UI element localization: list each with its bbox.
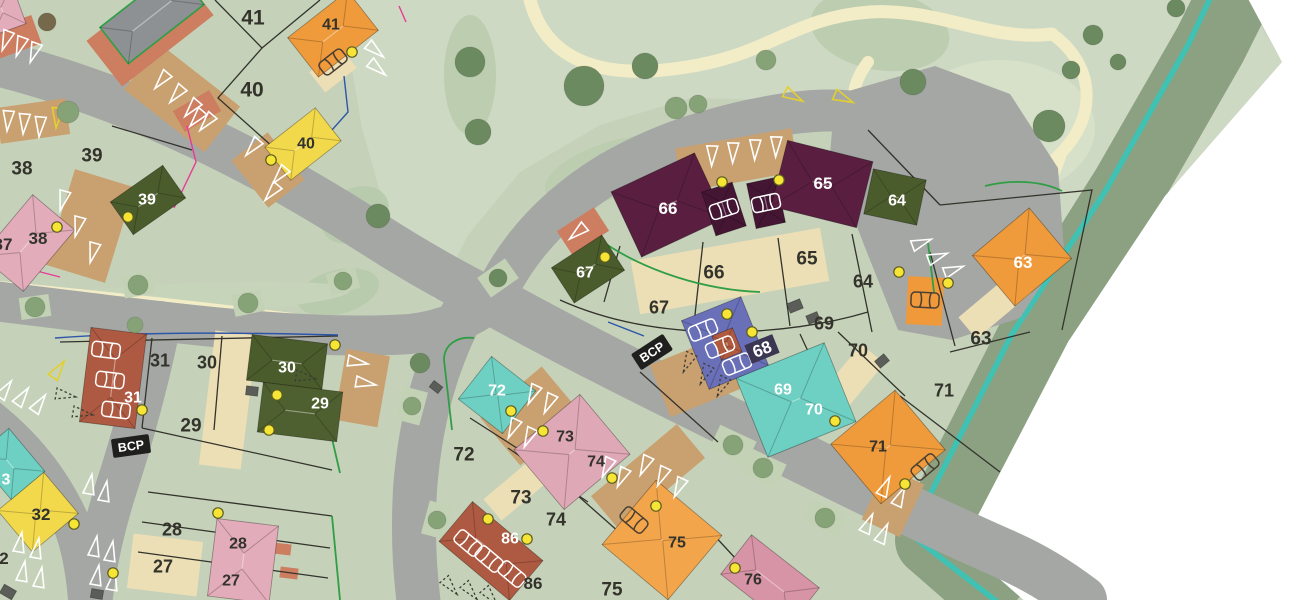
tree-icon bbox=[403, 397, 421, 415]
tree-icon bbox=[465, 119, 491, 145]
tree-icon bbox=[564, 66, 604, 106]
house-number-label: 70 bbox=[805, 402, 823, 419]
tree-icon bbox=[1033, 110, 1065, 142]
plot-number-label: 32 bbox=[32, 505, 51, 524]
building bbox=[207, 519, 278, 600]
site-plan-viewport: BCPBCP4140393838374140666564676369707171… bbox=[0, 0, 1299, 600]
tree-icon bbox=[25, 297, 45, 317]
plot-number-label: 70 bbox=[848, 340, 868, 360]
house-number-label: 72 bbox=[488, 383, 506, 400]
plot-number-label: 67 bbox=[649, 297, 669, 317]
plot-number-label: 29 bbox=[180, 416, 201, 437]
building bbox=[90, 589, 103, 600]
corner-marker bbox=[347, 47, 357, 57]
plot-number-label: 75 bbox=[601, 580, 623, 600]
corner-marker bbox=[538, 426, 548, 436]
tree-icon bbox=[334, 272, 352, 290]
plot-number-label: 74 bbox=[546, 509, 566, 529]
corner-marker bbox=[774, 175, 784, 185]
plot-number-label: 63 bbox=[970, 329, 991, 350]
building bbox=[245, 386, 258, 396]
corner-marker bbox=[651, 501, 661, 511]
plot-number-label: 41 bbox=[241, 6, 265, 29]
plot-number-label: 38 bbox=[11, 159, 32, 180]
plot-number-label: 38 bbox=[29, 229, 48, 248]
tree-icon bbox=[1062, 61, 1080, 79]
plot-number-label: 37 bbox=[0, 235, 12, 254]
plot-number-label: 73 bbox=[510, 488, 531, 509]
tree-icon bbox=[1167, 0, 1185, 17]
tree-icon bbox=[815, 508, 835, 528]
plot-number-label: 27 bbox=[222, 573, 240, 590]
plot-number-label: 27 bbox=[153, 556, 173, 576]
plot-number-label: 71 bbox=[934, 380, 954, 400]
corner-marker bbox=[747, 327, 757, 337]
tree-icon bbox=[410, 353, 430, 373]
plot-number-label: 75 bbox=[668, 535, 686, 552]
tree-icon bbox=[238, 293, 258, 313]
plot-number-label: 31 bbox=[150, 350, 170, 370]
plot-number-label: 64 bbox=[853, 271, 873, 291]
corner-marker bbox=[730, 563, 740, 573]
corner-marker bbox=[272, 390, 282, 400]
corner-marker bbox=[830, 416, 840, 426]
tree-icon bbox=[753, 458, 773, 478]
plot-number-label: 72 bbox=[453, 445, 474, 466]
house-number-label: 30 bbox=[278, 360, 296, 377]
tree-icon bbox=[665, 97, 687, 119]
house-number-label: 29 bbox=[311, 396, 329, 413]
tree-icon bbox=[1083, 25, 1103, 45]
house-number-label: 3 bbox=[2, 472, 11, 489]
house-number-label: 86 bbox=[501, 531, 519, 548]
tree-icon bbox=[428, 511, 446, 529]
tree-icon bbox=[689, 95, 707, 113]
corner-marker bbox=[69, 519, 79, 529]
corner-marker bbox=[722, 309, 732, 319]
plot-number-label: 28 bbox=[162, 519, 182, 539]
house-number-label: 63 bbox=[1014, 253, 1033, 272]
corner-marker bbox=[264, 425, 274, 435]
tree-icon bbox=[366, 204, 390, 228]
plot-number-label: 40 bbox=[240, 78, 263, 101]
plot-number-label: 65 bbox=[796, 249, 818, 270]
plot-number-label: 74 bbox=[587, 454, 605, 471]
plot-number-label: 69 bbox=[814, 313, 834, 333]
corner-marker bbox=[522, 534, 532, 544]
house-number-label: 66 bbox=[659, 199, 678, 218]
house-number-label: 69 bbox=[774, 382, 792, 399]
corner-marker bbox=[483, 514, 493, 524]
tree-icon bbox=[128, 275, 148, 295]
tree-icon bbox=[900, 69, 926, 95]
tree-icon bbox=[723, 435, 743, 455]
corner-marker bbox=[900, 479, 910, 489]
plot-number-label: 28 bbox=[229, 536, 247, 553]
plot-number-label: 39 bbox=[81, 146, 102, 167]
house-number-label: 67 bbox=[576, 265, 594, 282]
plot-number-label: 30 bbox=[197, 352, 217, 372]
corner-marker bbox=[894, 267, 904, 277]
corner-marker bbox=[52, 222, 62, 232]
tree-icon bbox=[38, 13, 56, 31]
corner-marker bbox=[123, 212, 133, 222]
house-number-label: 39 bbox=[138, 192, 156, 209]
corner-marker bbox=[600, 252, 610, 262]
house-number-label: 64 bbox=[888, 193, 906, 210]
corner-marker bbox=[330, 340, 340, 350]
corner-marker bbox=[607, 473, 617, 483]
corner-marker bbox=[213, 508, 223, 518]
tree-icon bbox=[489, 269, 507, 287]
site-plan-map[interactable]: BCPBCP4140393838374140666564676369707171… bbox=[0, 0, 1299, 600]
plot-number-label: 66 bbox=[703, 263, 724, 284]
tree-icon bbox=[756, 50, 776, 70]
corner-marker bbox=[108, 568, 118, 578]
tree-icon bbox=[1110, 54, 1126, 70]
plot-number-label: 40 bbox=[297, 136, 315, 153]
corner-marker bbox=[717, 177, 727, 187]
plot-number-label: 71 bbox=[869, 439, 887, 456]
tree-icon bbox=[127, 317, 143, 333]
tree-icon bbox=[455, 47, 485, 77]
house-number-label: 31 bbox=[124, 390, 142, 407]
plot-number-label: 41 bbox=[322, 17, 340, 34]
tree-icon bbox=[57, 101, 79, 123]
plot-number-label: 86 bbox=[524, 574, 543, 593]
plot-number-label: 2 bbox=[0, 549, 9, 568]
corner-marker bbox=[943, 278, 953, 288]
corner-marker bbox=[266, 155, 276, 165]
plot-number-label: 76 bbox=[744, 572, 762, 589]
plot-number-label: 73 bbox=[556, 429, 574, 446]
corner-marker bbox=[506, 406, 516, 416]
tree-icon bbox=[632, 53, 658, 79]
house-number-label: 65 bbox=[814, 174, 833, 193]
